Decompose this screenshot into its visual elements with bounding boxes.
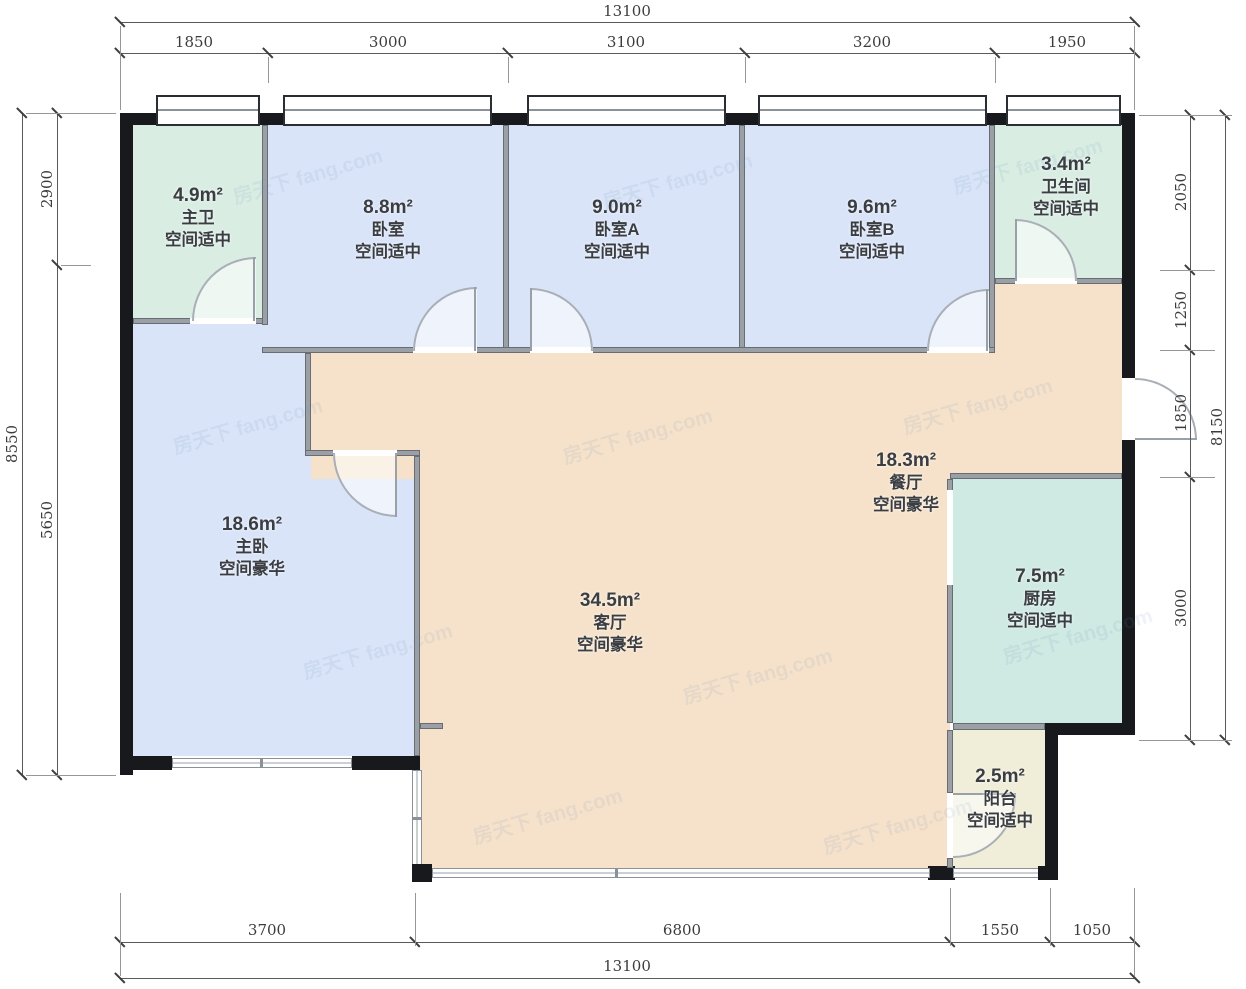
wall-master-living <box>414 456 420 756</box>
dim-ext <box>120 893 121 976</box>
dim-right-seg: 1250 <box>1172 291 1190 329</box>
room-quality: 空间适中 <box>967 811 1033 833</box>
dim-left-seg: 2900 <box>38 170 56 208</box>
dim-ext <box>995 57 996 83</box>
floor-plan: 4.9m² 主卫 空间适中 8.8m² 卧室 空间适中 9.0m² 卧室A 空间… <box>0 0 1246 989</box>
room-name: 主卧 <box>219 537 285 559</box>
dim-line-left-total <box>22 113 23 775</box>
dim-top-seg: 1950 <box>1048 33 1086 51</box>
dim-top-total: 13100 <box>603 2 651 20</box>
room-area: 4.9m² <box>165 183 231 208</box>
door-leaf-bathroom <box>1015 219 1017 281</box>
dim-ext <box>1139 740 1232 741</box>
wall-exterior-right-upper <box>1122 113 1135 378</box>
dim-line-top-segments <box>120 53 1135 54</box>
room-label-master-bedroom: 18.6m² 主卧 空间豪华 <box>219 512 285 581</box>
dim-right-seg: 2050 <box>1172 173 1190 211</box>
wall-exterior-left <box>120 113 133 775</box>
door-leaf-bedroom-a <box>530 288 532 351</box>
room-quality: 空间适中 <box>584 242 650 264</box>
room-label-master-bath: 4.9m² 主卫 空间适中 <box>165 183 231 252</box>
wall-bedrooms-bottom <box>262 347 995 353</box>
dim-bottom-seg: 3700 <box>248 921 286 939</box>
wall-living-bottom-right <box>928 866 955 880</box>
room-name: 卧室A <box>584 220 650 242</box>
dim-ext <box>745 57 746 83</box>
room-area: 7.5m² <box>1007 564 1073 589</box>
window-divider <box>260 758 263 768</box>
room-name: 卫生间 <box>1033 177 1099 199</box>
door-leaf-master-bedroom <box>395 453 397 517</box>
dim-right-seg: 3000 <box>1172 589 1190 627</box>
room-quality: 空间适中 <box>355 242 421 264</box>
dim-line-bottom-total <box>120 978 1135 979</box>
room-name: 厨房 <box>1007 589 1073 611</box>
room-quality: 空间豪华 <box>873 495 939 517</box>
bay-window-master-bath <box>156 95 260 126</box>
dim-top-seg: 3200 <box>853 33 891 51</box>
room-name: 餐厅 <box>873 473 939 495</box>
dim-bottom-total: 13100 <box>603 957 651 975</box>
bay-window-bedroom <box>283 95 492 126</box>
dim-ext <box>1160 350 1215 351</box>
dim-ext <box>61 265 91 266</box>
window-living-south <box>432 868 930 878</box>
opening-kitchen <box>947 490 953 585</box>
wall-bedroomA-bedroomB <box>739 125 745 353</box>
dim-line-left-segments <box>57 113 58 775</box>
dim-ext <box>1050 888 1051 946</box>
room-quality: 空间适中 <box>1007 611 1073 633</box>
room-name: 主卫 <box>165 208 231 230</box>
dim-ext <box>268 57 269 83</box>
wall-balcony-left-upper <box>947 730 953 793</box>
dim-ext <box>26 775 116 776</box>
bay-window-bedroom-a <box>527 95 726 126</box>
room-quality: 空间适中 <box>839 242 905 264</box>
bay-window-bedroom-b <box>758 95 987 126</box>
dim-bottom-seg: 1050 <box>1073 921 1111 939</box>
wall-living-bottom-left-corner <box>412 864 432 882</box>
dim-ext <box>950 888 951 946</box>
room-area: 9.0m² <box>584 195 650 220</box>
dim-top-seg: 1850 <box>175 33 213 51</box>
door-leaf-bedroom-b <box>986 289 988 351</box>
dim-left-seg: 5650 <box>38 501 56 539</box>
wall-exterior-right-lower <box>1122 440 1135 735</box>
dim-bottom-seg: 6800 <box>663 921 701 939</box>
room-area: 3.4m² <box>1033 152 1099 177</box>
room-name: 阳台 <box>967 789 1033 811</box>
room-area: 18.6m² <box>219 512 285 537</box>
room-label-living-room: 34.5m² 客厅 空间豪华 <box>577 588 643 657</box>
room-label-dining-room: 18.3m² 餐厅 空间豪华 <box>873 448 939 517</box>
room-name: 卧室 <box>355 220 421 242</box>
wall-balcony-bottom-corner <box>1038 866 1058 880</box>
dim-top-seg: 3100 <box>607 33 645 51</box>
room-area: 9.6m² <box>839 195 905 220</box>
room-label-kitchen: 7.5m² 厨房 空间适中 <box>1007 564 1073 633</box>
room-quality: 空间豪华 <box>577 635 643 657</box>
dim-right-seg: 1850 <box>1172 394 1190 432</box>
room-area: 34.5m² <box>577 588 643 613</box>
wall-bedroom-bedroomA <box>503 125 509 353</box>
room-label-bedroom-b: 9.6m² 卧室B 空间适中 <box>839 195 905 264</box>
wall-master-living-upper <box>305 353 311 456</box>
room-name: 客厅 <box>577 613 643 635</box>
dim-left-total: 8550 <box>3 425 21 463</box>
wall-exterior-balcony-right <box>1045 723 1058 880</box>
door-leaf-entry <box>1135 438 1197 440</box>
room-dining-floor-upper <box>995 284 1122 354</box>
dim-bottom-seg: 1550 <box>981 921 1019 939</box>
dim-line-top-total <box>120 22 1135 23</box>
dim-ext <box>120 26 121 110</box>
room-quality: 空间适中 <box>1033 199 1099 221</box>
room-name: 卧室B <box>839 220 905 242</box>
dim-ext <box>508 57 509 83</box>
window-divider <box>615 868 618 878</box>
room-living-floor <box>420 456 950 868</box>
wall-master-bottom-left <box>120 756 172 770</box>
dim-ext <box>26 113 116 114</box>
dim-ext <box>1160 270 1215 271</box>
window-balcony-south <box>953 868 1043 878</box>
window-divider <box>412 817 422 820</box>
room-quality: 空间适中 <box>165 230 231 252</box>
wall-masterbath-bedroom <box>262 125 268 325</box>
bay-window-bathroom <box>1006 95 1121 126</box>
dim-right-total: 8150 <box>1208 408 1226 446</box>
room-label-bedroom-a: 9.0m² 卧室A 空间适中 <box>584 195 650 264</box>
room-quality: 空间豪华 <box>219 559 285 581</box>
dim-ext <box>1160 477 1215 478</box>
room-label-balcony: 2.5m² 阳台 空间适中 <box>967 764 1033 833</box>
room-area: 2.5m² <box>967 764 1033 789</box>
wall-balcony-left-lower <box>947 858 953 868</box>
wall-bedroomB-bathroom <box>989 125 995 353</box>
wall-kitchen-bottom <box>953 723 1045 730</box>
dim-ext <box>1134 888 1135 976</box>
door-leaf-bedroom <box>474 287 476 351</box>
dim-line-bottom-segments <box>120 942 1135 943</box>
dim-top-seg: 3000 <box>369 33 407 51</box>
dim-ext <box>415 893 416 946</box>
dim-ext <box>1134 26 1135 110</box>
room-label-bathroom: 3.4m² 卫生间 空间适中 <box>1033 152 1099 221</box>
door-leaf-master-bath <box>253 257 255 321</box>
wall-master-bottom-right <box>352 756 420 770</box>
wall-kitchen-top <box>950 473 1122 479</box>
wall-exterior-kitchen-bottom <box>1045 723 1135 735</box>
wall-stub-living <box>420 723 443 729</box>
room-area: 18.3m² <box>873 448 939 473</box>
dim-ext <box>1139 115 1232 116</box>
room-label-bedroom: 8.8m² 卧室 空间适中 <box>355 195 421 264</box>
room-area: 8.8m² <box>355 195 421 220</box>
dim-line-right-segments <box>1190 115 1191 740</box>
